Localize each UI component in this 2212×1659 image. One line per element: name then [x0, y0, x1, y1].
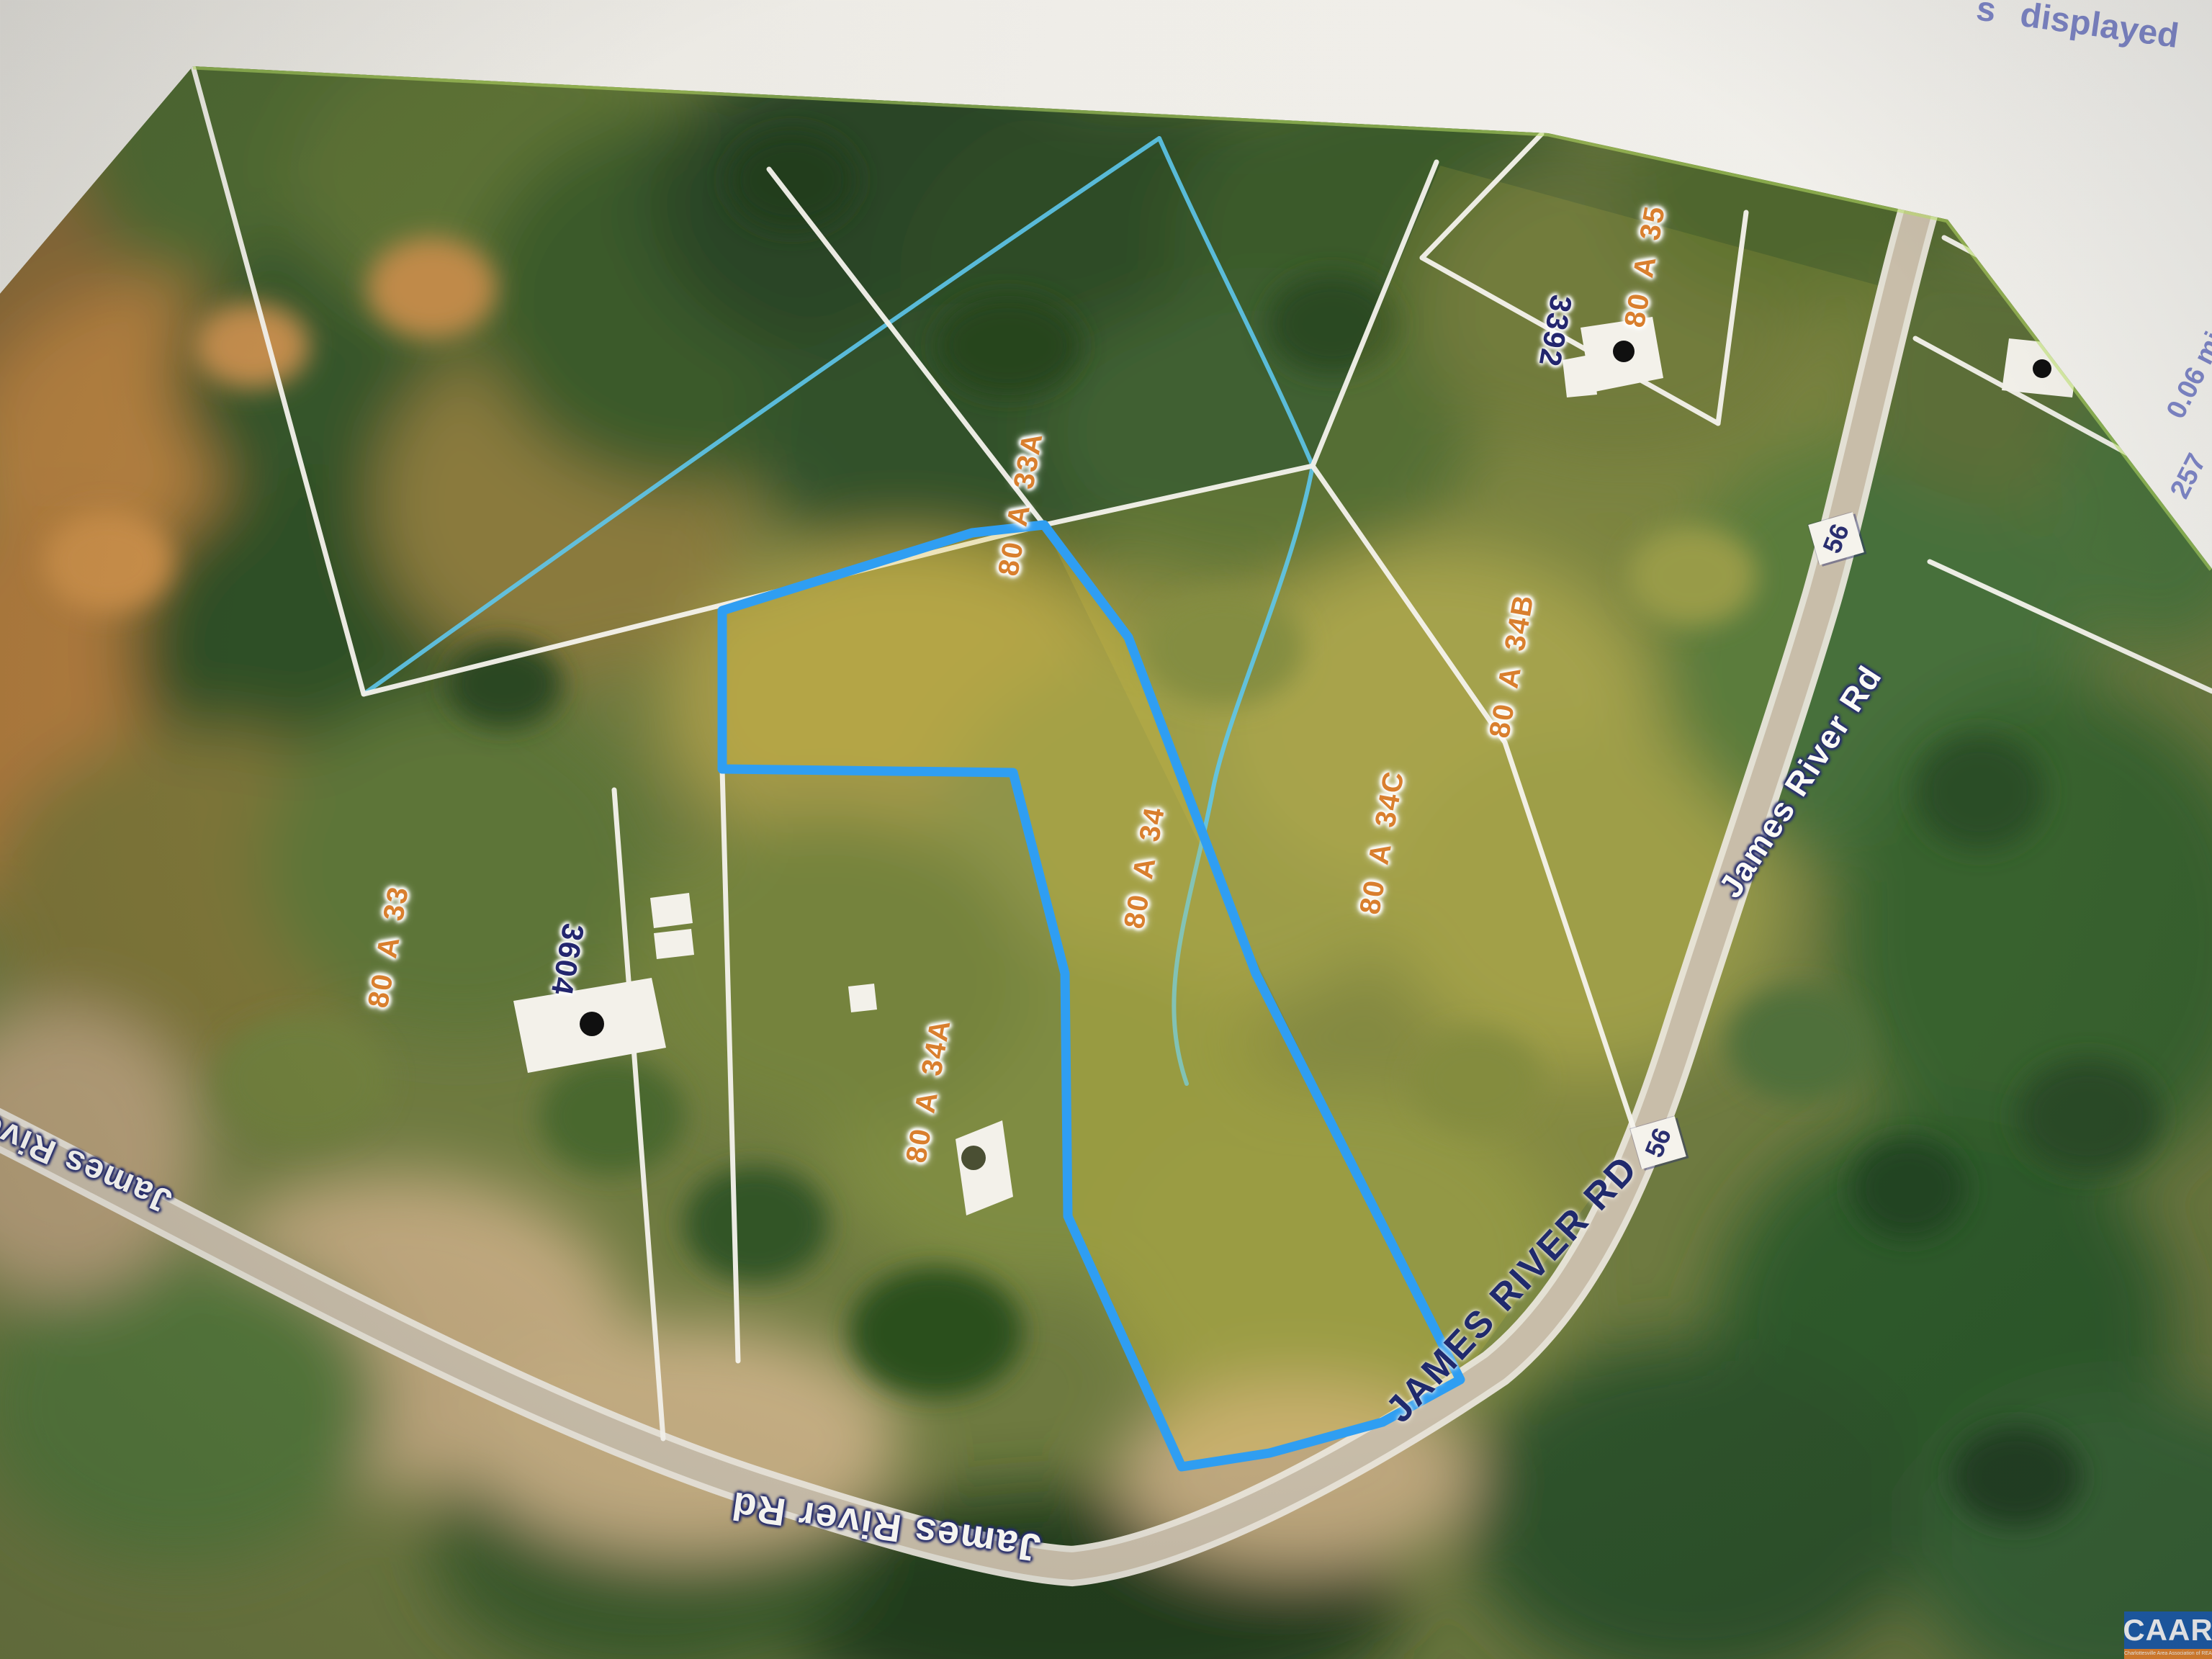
caar-tagline: Charlottesville Area Association of REAL…	[2124, 1649, 2212, 1659]
caar-logo: CAAR	[2124, 1611, 2212, 1649]
paper-scale-distance: 0.06 mi	[2161, 327, 2212, 423]
gis-parcel-map: 80 A 33A 80 A 34 80 A 34A 80 A 34B 80 A …	[0, 0, 2212, 1659]
aerial-map-graphics	[0, 0, 2212, 1659]
paper-text-fragment: s	[1974, 0, 1998, 31]
paper-note-displayed: displayed	[2018, 0, 2181, 56]
caar-watermark: CAAR Charlottesville Area Association of…	[2124, 1611, 2212, 1659]
paper-scale-number: 257	[2164, 449, 2212, 503]
